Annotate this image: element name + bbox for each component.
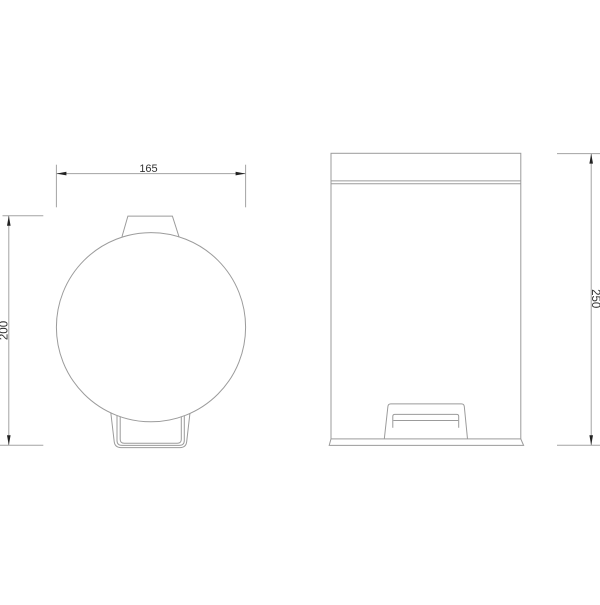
svg-text:250: 250 [589,289,600,308]
svg-text:165: 165 [139,163,157,175]
svg-text:200: 200 [0,321,10,340]
